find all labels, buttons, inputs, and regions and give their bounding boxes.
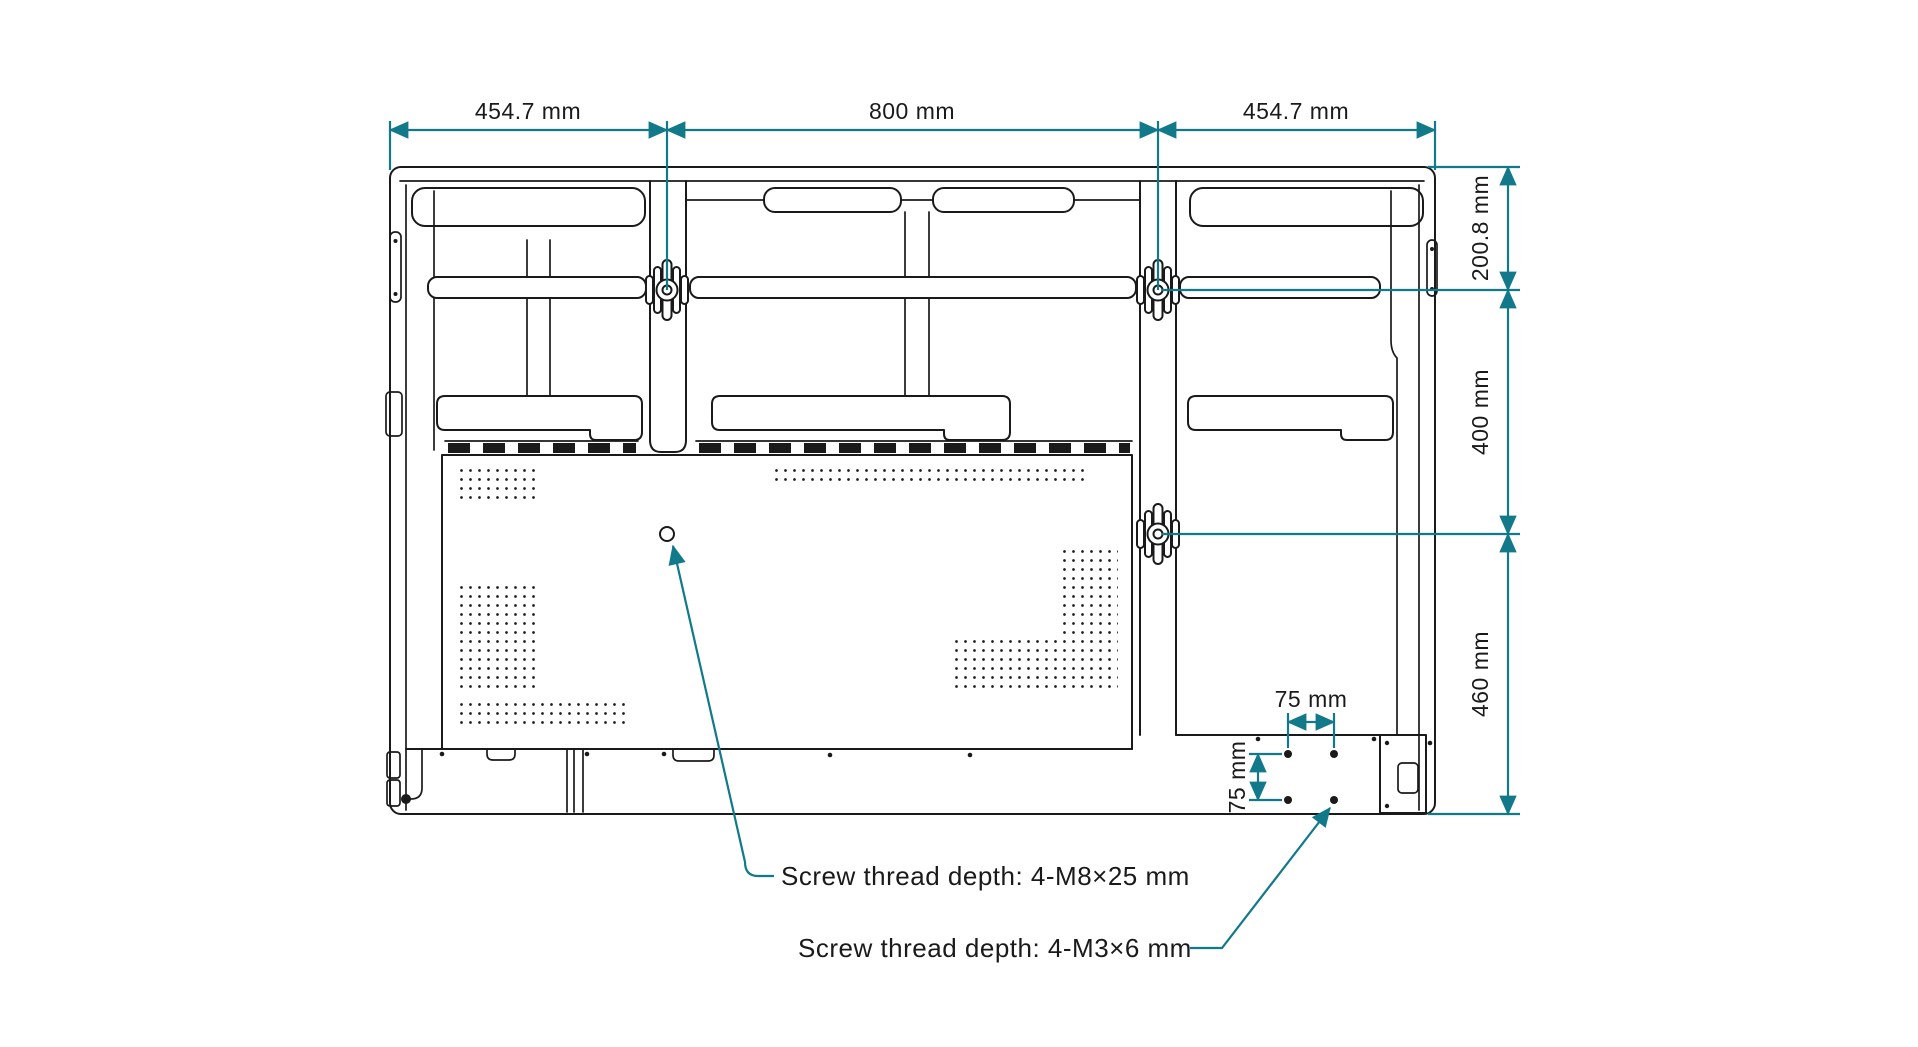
upper-rail-right	[1180, 277, 1380, 298]
mid-rail-left	[437, 396, 642, 440]
m3-vertical-extension-lines	[1249, 754, 1282, 800]
annotation-m8-label: Screw thread depth: 4-M8×25 mm	[781, 861, 1190, 891]
vent-strip	[445, 441, 1132, 448]
dimension-lines	[390, 121, 1520, 948]
m3-screw-holes	[1284, 750, 1338, 804]
leader-m8-note	[673, 546, 774, 876]
dim-label-right-bottom: 460 mm	[1467, 631, 1493, 717]
perforation-fields	[455, 463, 1118, 728]
display-rear-outline	[386, 167, 1437, 814]
handle-slot-right	[933, 188, 1074, 212]
chassis-right-profile-line	[1391, 191, 1397, 735]
top-left-pocket	[412, 188, 645, 226]
m8-vesa-hole	[660, 527, 674, 541]
bottom-strip	[387, 735, 1432, 813]
top-right-pocket	[1190, 188, 1423, 226]
center-rib-pair	[905, 212, 929, 396]
upper-rail-center	[690, 277, 1136, 298]
dim-label-right-middle: 400 mm	[1467, 369, 1493, 455]
top-extension-lines	[390, 121, 1435, 290]
dim-label-right-top: 200.8 mm	[1467, 175, 1493, 281]
m3-horizontal-extension-lines	[1288, 713, 1334, 748]
leader-m3-note	[1190, 808, 1330, 948]
display-rear-technical-drawing: 454.7 mm 800 mm 454.7 mm 200.8 mm 400 mm…	[0, 0, 1918, 1047]
annotation-m3-label: Screw thread depth: 4-M3×6 mm	[798, 933, 1192, 963]
upper-rail-left	[428, 277, 646, 298]
dim-label-top-left: 454.7 mm	[475, 98, 581, 124]
handle-slot-left	[764, 188, 901, 212]
dimension-labels: 454.7 mm 800 mm 454.7 mm 200.8 mm 400 mm…	[475, 98, 1493, 963]
mid-rail-right	[1188, 396, 1393, 440]
mid-rail-center	[712, 396, 1010, 440]
dim-label-screw-pattern-vertical: 75 mm	[1224, 741, 1250, 814]
left-rib-pair	[527, 240, 550, 396]
dim-label-top-center: 800 mm	[869, 98, 955, 124]
technical-drawing-page: 454.7 mm 800 mm 454.7 mm 200.8 mm 400 mm…	[0, 0, 1918, 1047]
dim-label-top-right: 454.7 mm	[1243, 98, 1349, 124]
dim-label-screw-pattern-horizontal: 75 mm	[1275, 686, 1348, 712]
